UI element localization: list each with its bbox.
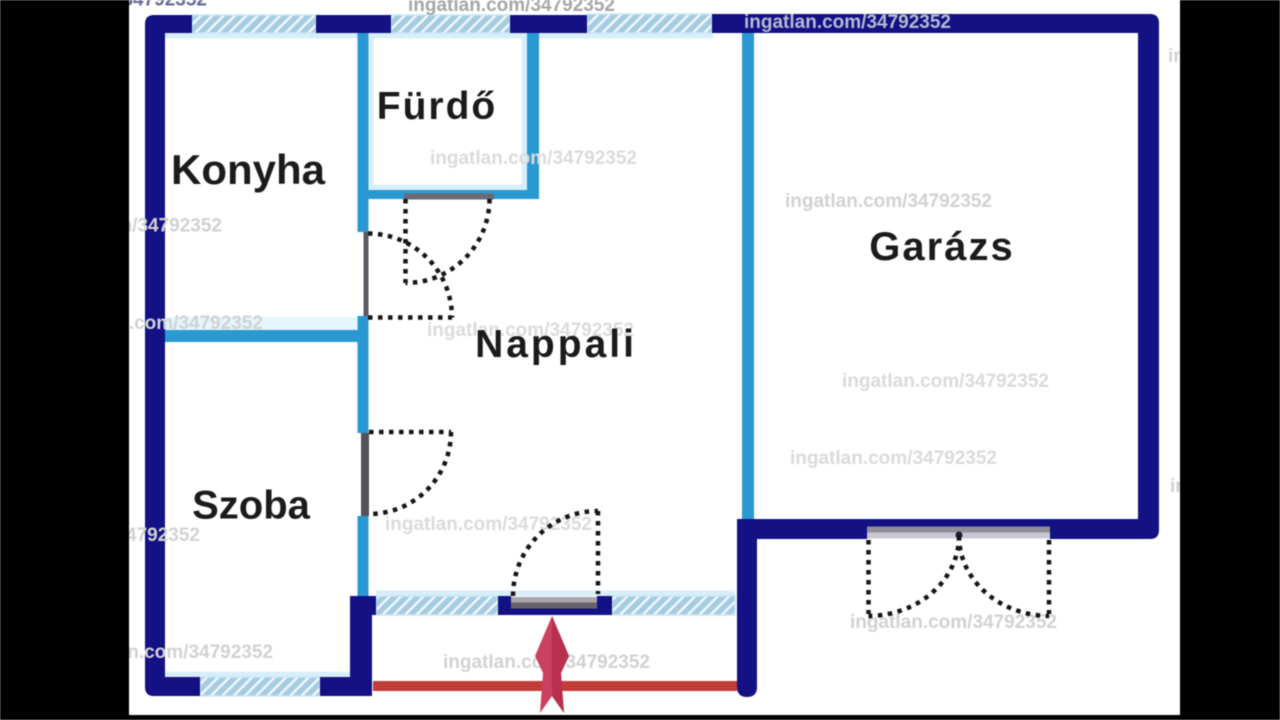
svg-text:ingatlan.com/34792352: ingatlan.com/34792352	[744, 12, 951, 33]
svg-text:Szoba: Szoba	[192, 484, 311, 528]
svg-text:ingatlan.com/34792352: ingatlan.com/34792352	[385, 514, 592, 535]
svg-text:Konyha: Konyha	[171, 146, 326, 193]
svg-text:Nappali: Nappali	[475, 323, 637, 366]
svg-text:Fürdő: Fürdő	[377, 85, 497, 128]
svg-text:ingatlan.com/34792352: ingatlan.com/34792352	[785, 191, 992, 212]
svg-text:ingatlan.com/34792352: ingatlan.com/34792352	[408, 0, 615, 16]
svg-text:ingatlan.com/34792352: ingatlan.com/34792352	[430, 148, 637, 169]
svg-text:Garázs: Garázs	[869, 225, 1014, 269]
svg-text:ingatlan.com/34792352: ingatlan.com/34792352	[790, 448, 997, 469]
svg-text:ingatlan.com/34792352: ingatlan.com/34792352	[842, 371, 1049, 392]
